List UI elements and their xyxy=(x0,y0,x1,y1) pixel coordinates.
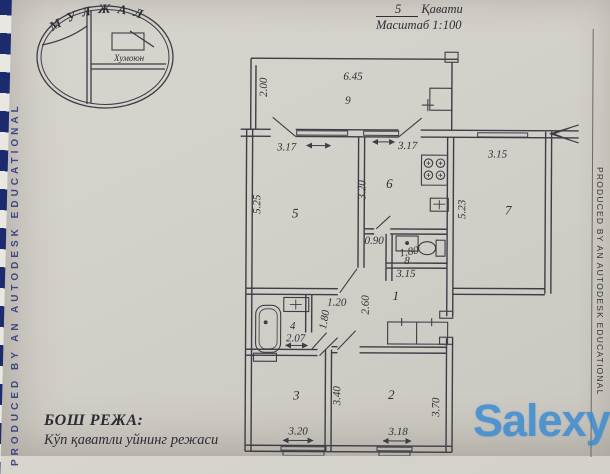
dim-balcony-depth: 2.00 xyxy=(258,77,270,97)
dim-hall-top-width: 3.15 xyxy=(395,268,416,280)
drawing-subtitle: Кўп қаватли уйнинг режаси xyxy=(44,432,218,449)
room-label-room5: 5 xyxy=(292,205,299,220)
dim-room3-height: 3.40 xyxy=(331,386,343,407)
drawing-title-block: БОШ РЕЖА: Кўп қаватли уйнинг режаси xyxy=(44,412,218,449)
site-locator-map: МУЛЖАЛ Хумоюн xyxy=(26,0,194,116)
dim-room7-height: 5.23 xyxy=(456,199,468,219)
wall-break-mark xyxy=(551,125,579,143)
dim-passage: 0.90 xyxy=(364,235,384,247)
hall-closet xyxy=(388,318,448,344)
dim-room5-height: 5.25 xyxy=(251,194,263,214)
sheet-border-line xyxy=(591,29,593,457)
locator-building xyxy=(112,33,144,50)
locator-title: МУЛЖАЛ xyxy=(46,1,152,35)
dim-balcony-width: 6.45 xyxy=(343,71,363,83)
room-label-balcony: 9 xyxy=(345,95,351,107)
plan-fixtures xyxy=(253,51,458,362)
room-label-room3: 3 xyxy=(292,387,300,402)
room-label-kitchen: 6 xyxy=(386,176,393,191)
kitchen-sink-icon xyxy=(430,198,448,211)
dim-nook-width: 1.20 xyxy=(327,297,347,309)
left-edge-stamp: PRODUCED BY AN AUTODESK EDUCATIONAL PROD… xyxy=(10,96,26,466)
salexy-watermark: Salexy xyxy=(473,395,610,447)
vent-duct xyxy=(422,88,452,111)
dim-room3-width: 3.20 xyxy=(287,425,308,437)
room-label-toilet: 8 xyxy=(404,255,410,267)
room3-wardrobe xyxy=(253,353,276,361)
room-label-room7: 7 xyxy=(505,203,512,218)
dim-room5-width: 3.17 xyxy=(276,141,297,153)
dim-bath-width: 2.07 xyxy=(286,332,306,344)
dim-nook-height: 1.80 xyxy=(317,309,332,331)
room-label-bath: 4 xyxy=(290,320,296,332)
balcony-post xyxy=(445,52,458,62)
dim-hall-height: 2.60 xyxy=(360,295,372,315)
dim-kitchen-height: 3.20 xyxy=(356,180,368,201)
dim-room2-width: 3.18 xyxy=(387,426,408,438)
room-label-room2: 2 xyxy=(388,387,395,402)
room-label-hall: 1 xyxy=(393,288,400,303)
toilet-icon xyxy=(419,240,446,256)
bathtub-icon xyxy=(256,305,281,352)
drawing-title: БОШ РЕЖА: xyxy=(44,412,218,430)
dim-room2-height: 3.70 xyxy=(430,397,442,418)
stove-icon xyxy=(421,155,447,185)
dim-kitchen-width: 3.17 xyxy=(397,140,418,152)
dim-room7-width: 3.15 xyxy=(487,148,508,160)
locator-street-label: Хумоюн xyxy=(113,53,145,63)
